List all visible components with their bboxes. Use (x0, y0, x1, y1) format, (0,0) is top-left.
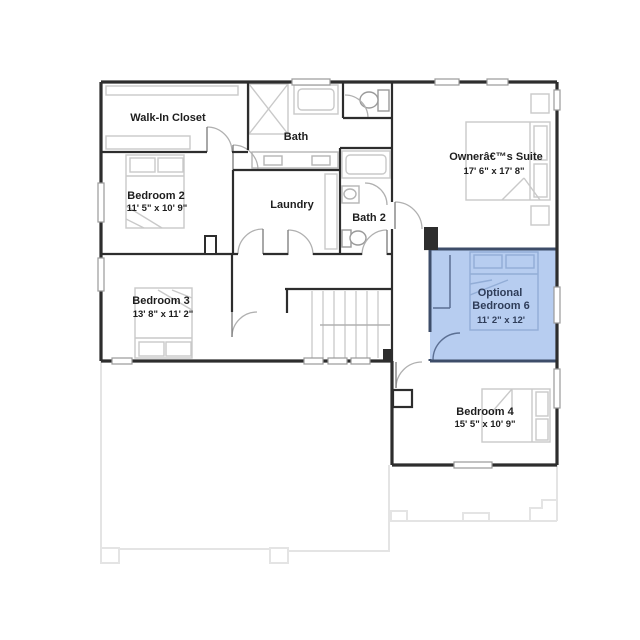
window-marker (487, 79, 508, 85)
room-label-walk-in-closet: Walk-In Closet (130, 112, 206, 124)
window-marker (98, 258, 104, 291)
bathtub-icon (342, 151, 390, 178)
room-label-bedroom6: Bedroom 6 (472, 300, 529, 312)
toilet-icon (360, 90, 389, 111)
door-arc (362, 230, 387, 255)
window-marker (554, 90, 560, 110)
window-marker (351, 358, 370, 364)
room-dims-bedroom6: 11' 2" x 12' (477, 315, 525, 326)
door-arc (395, 202, 422, 229)
shower-icon (249, 84, 288, 134)
window-marker (292, 79, 330, 85)
room-label-bedroom4: Bedroom 4 (456, 406, 514, 418)
staircase (312, 291, 390, 358)
nightstand-icon (531, 94, 549, 113)
window-marker (328, 358, 347, 364)
room-label-bedroom2: Bedroom 2 (127, 190, 184, 202)
door-arc (233, 145, 258, 170)
window-marker (98, 183, 104, 222)
window-marker (304, 358, 323, 364)
window-marker (112, 358, 132, 364)
room-label-owners-suite: Ownerâ€™s Suite (449, 151, 543, 163)
room-dims-owners-suite: 17' 6" x 17' 8" (463, 166, 524, 177)
door-arcs (207, 95, 422, 388)
door-arc (207, 127, 232, 152)
window-marker (435, 79, 459, 85)
door-arc (238, 229, 263, 254)
door-arc (396, 362, 422, 388)
room-dims-bedroom2: 11' 5" x 10' 9" (127, 203, 188, 214)
floor-plan-page: Walk-In Closet Bath Bedroom 2 11' 5" x 1… (0, 0, 640, 640)
room-label-bath: Bath (284, 131, 309, 143)
door-arc (288, 230, 313, 255)
laundry-counter-icon (325, 174, 337, 249)
room-dims-bedroom4: 15' 5" x 10' 9" (454, 419, 515, 430)
door-arc (365, 183, 387, 205)
wall-posts (205, 227, 438, 361)
door-arc (232, 312, 257, 337)
floor-plan-canvas: Walk-In Closet Bath Bedroom 2 11' 5" x 1… (0, 0, 640, 640)
window-marker (554, 287, 560, 323)
room-label-bath2: Bath 2 (352, 212, 386, 224)
room-dims-bedroom3: 13' 8" x 11' 2" (133, 309, 194, 320)
window-marker (454, 462, 492, 468)
nightstand-icon (531, 206, 549, 225)
room-label-optional: Optional (478, 287, 523, 299)
bathtub-icon (294, 85, 338, 114)
toilet-icon (342, 230, 366, 247)
room-label-bedroom3: Bedroom 3 (132, 295, 189, 307)
window-marker (554, 369, 560, 408)
room-label-laundry: Laundry (270, 199, 314, 211)
sink-icon (342, 186, 359, 203)
vanity-sink-icon (252, 152, 338, 168)
